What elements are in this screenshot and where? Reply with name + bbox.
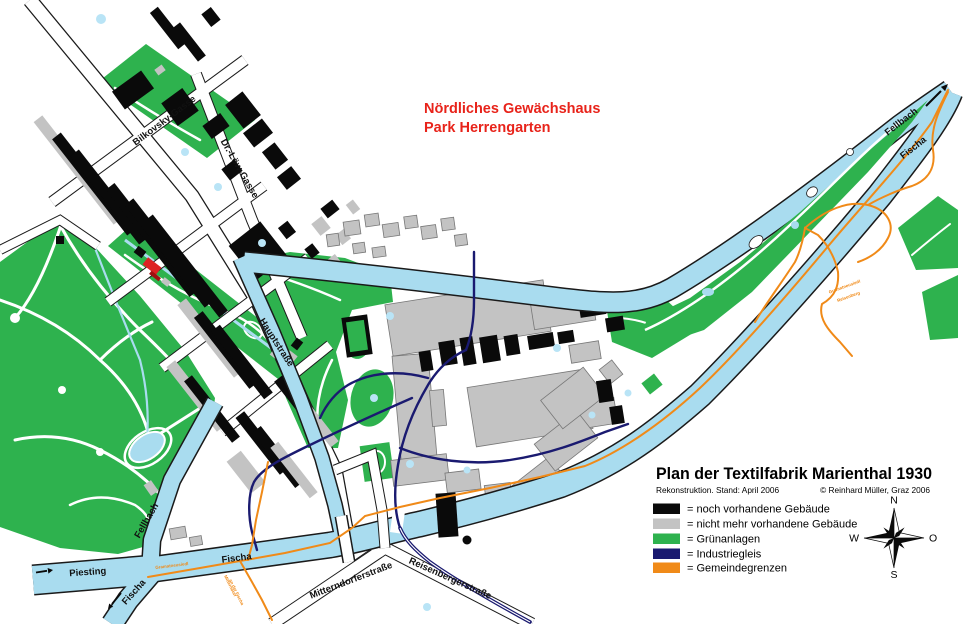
label-boundary-south-2: an der Fischa bbox=[228, 578, 245, 606]
legend-label-green: = Grünanlagen bbox=[687, 534, 760, 546]
compass-n: N bbox=[890, 495, 898, 507]
label-reisenbergerstrasse: Reisenbergerstraße bbox=[407, 556, 493, 602]
compass-w: W bbox=[849, 533, 859, 545]
compass-s: S bbox=[890, 569, 897, 581]
map-subtitle-left: Rekonstruktion. Stand: April 2006 bbox=[656, 485, 780, 495]
map-canvas: Bilkovsky-Gasse Dr.-Löw-Gasse Hauptstraß… bbox=[0, 0, 980, 624]
title-block: Plan der Textilfabrik Marienthal 1930 Re… bbox=[656, 465, 932, 495]
compass-o: O bbox=[929, 533, 937, 545]
legend-swatch-green bbox=[653, 534, 680, 545]
legend-label-existing: = noch vorhandene Gebäude bbox=[687, 504, 830, 516]
annotation-line-1: Nördliches Gewächshaus bbox=[424, 101, 600, 117]
black-marker-dot bbox=[463, 536, 472, 545]
green-right-edge-2 bbox=[922, 275, 958, 340]
legend-swatch-boundary bbox=[653, 563, 680, 574]
legend-label-rail: = Industriegleis bbox=[687, 549, 762, 561]
legend-swatch-gone bbox=[653, 519, 680, 530]
compass-rose: N S W O bbox=[849, 495, 937, 582]
legend: = noch vorhandene Gebäude = nicht mehr v… bbox=[653, 504, 857, 575]
legend-swatch-existing bbox=[653, 504, 680, 515]
legend-label-boundary: = Gemeindegrenzen bbox=[687, 563, 787, 575]
green-right-edge-1 bbox=[898, 196, 958, 270]
map-plan-marienthal: Bilkovsky-Gasse Dr.-Löw-Gasse Hauptstraß… bbox=[0, 0, 980, 624]
legend-swatch-rail bbox=[653, 549, 680, 560]
map-title: Plan der Textilfabrik Marienthal 1930 bbox=[656, 465, 932, 483]
label-boundary-ne-2: Reisenberg bbox=[836, 290, 860, 303]
map-subtitle-right: © Reinhard Müller, Graz 2006 bbox=[820, 485, 930, 495]
annotation-line-2: Park Herrengarten bbox=[424, 120, 551, 136]
legend-label-gone: = nicht mehr vorhandene Gebäude bbox=[687, 519, 857, 531]
